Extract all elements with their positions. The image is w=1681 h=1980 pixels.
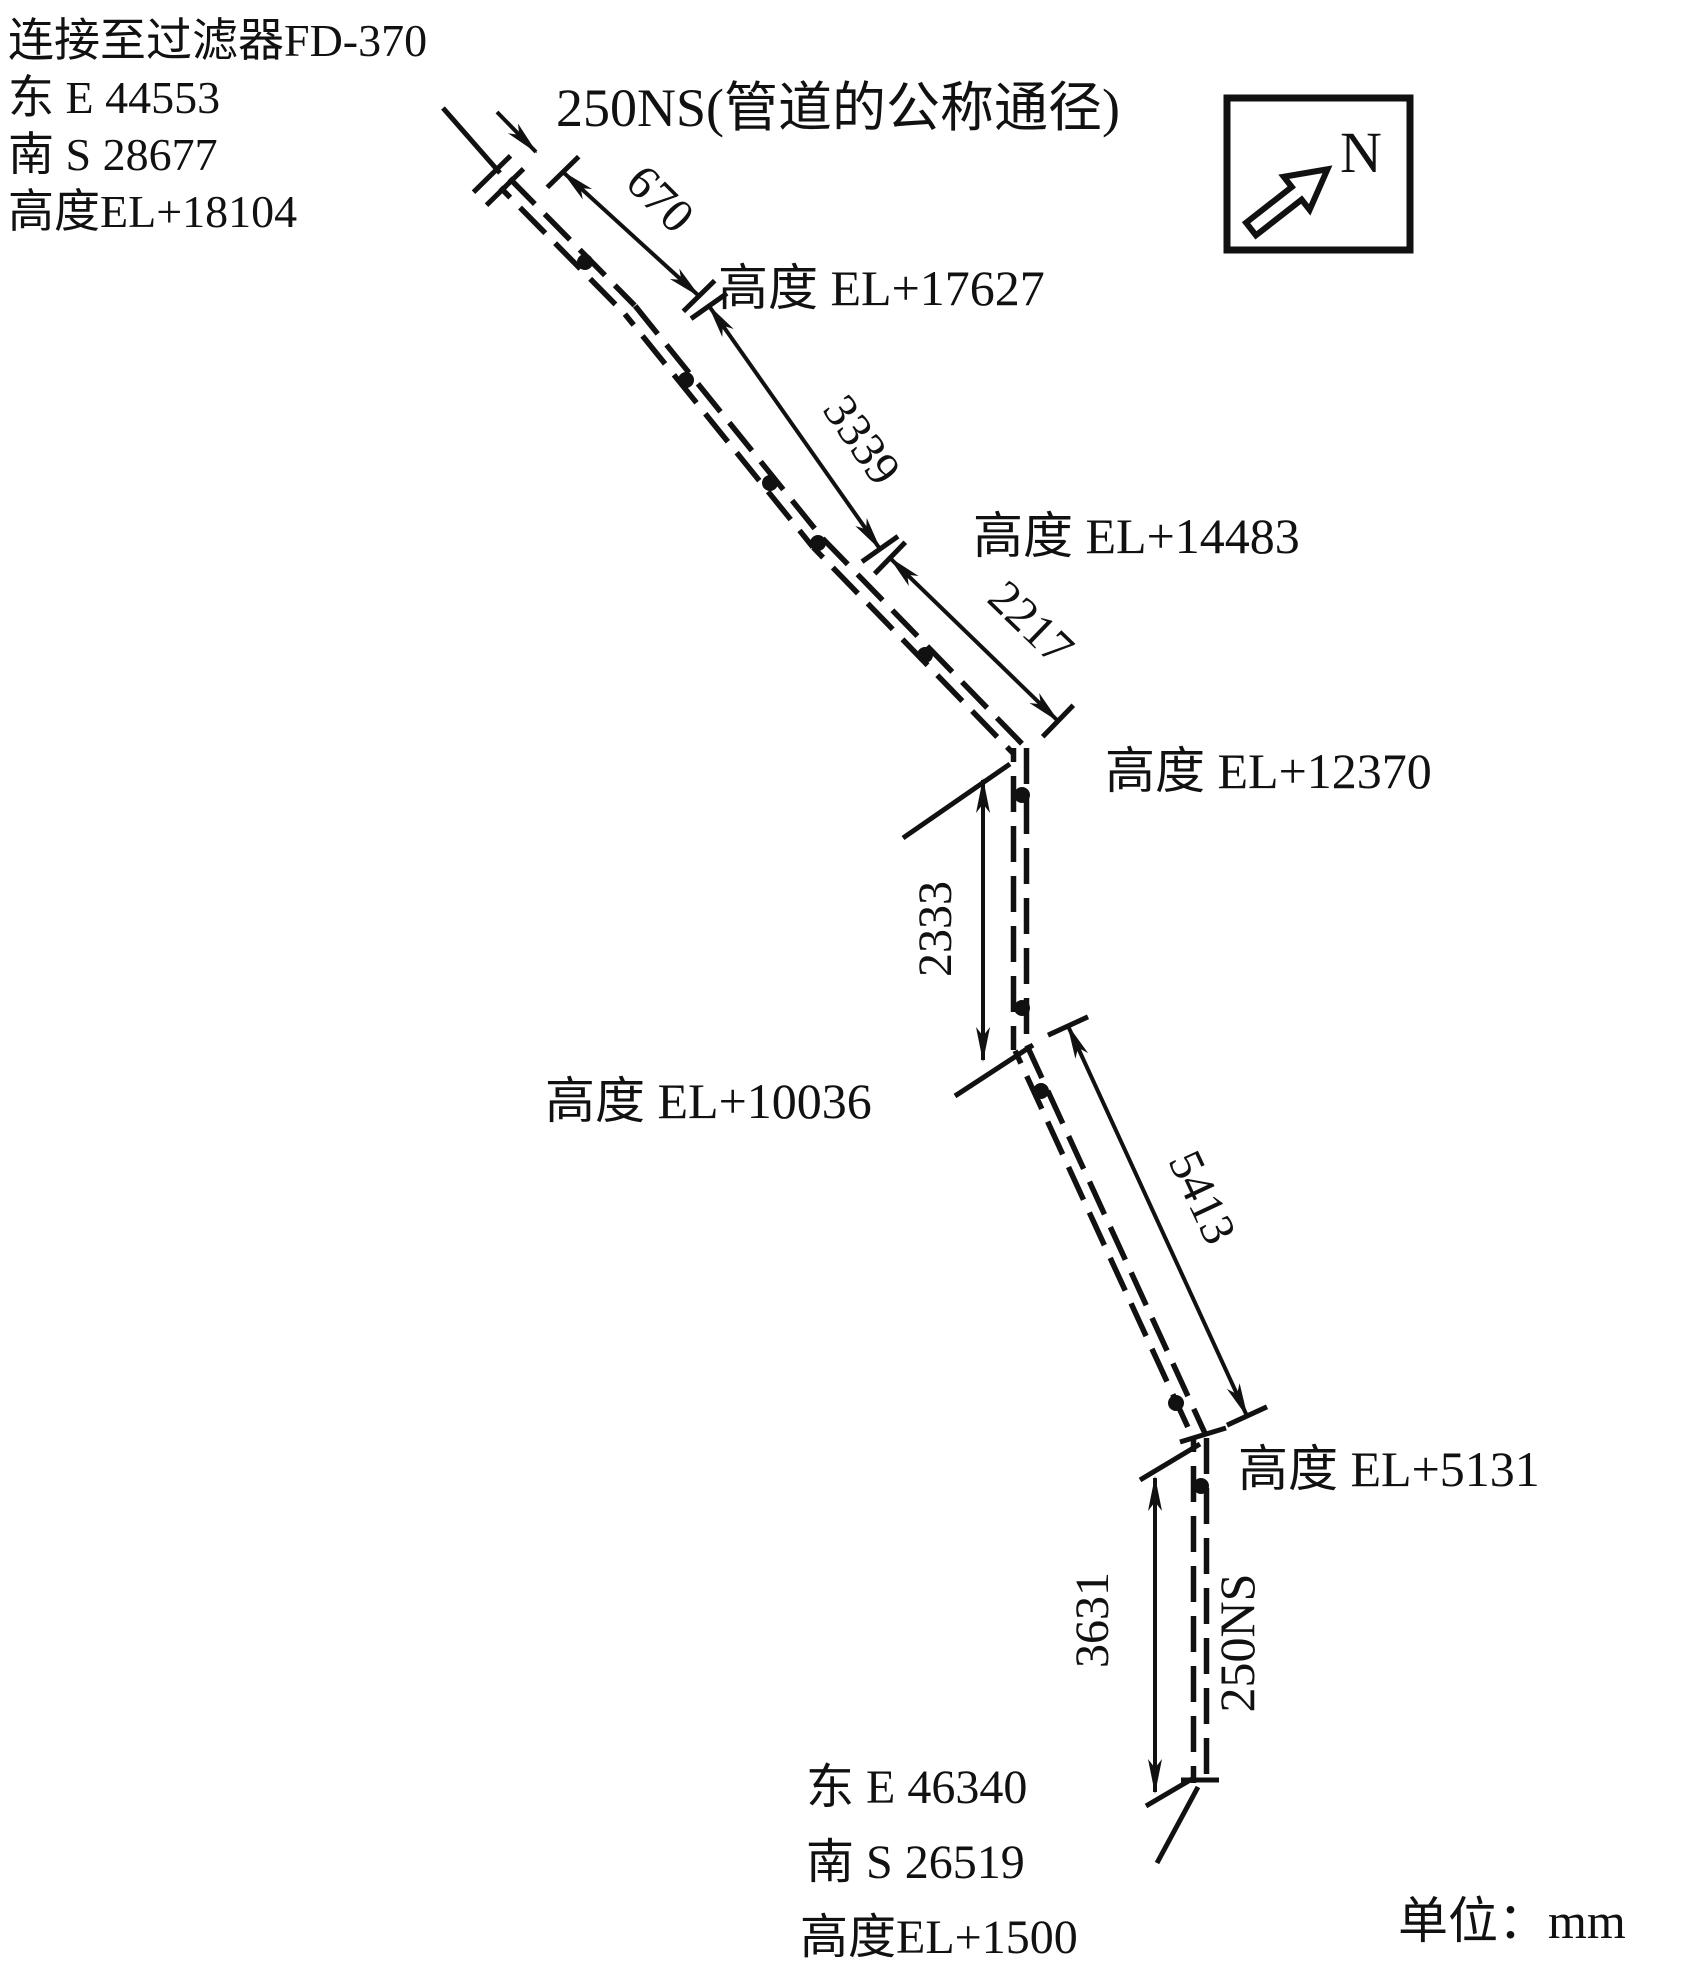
source-east: 东 E 44553 xyxy=(8,72,220,123)
north-arrow-icon xyxy=(1238,153,1340,246)
drawing-canvas: N 连接至过滤器FD-370 东 E 44553 南 S 28677 高度EL+… xyxy=(0,0,1681,1980)
destination-east: 东 E 46340 xyxy=(806,1761,1027,1814)
source-south: 南 S 28677 xyxy=(8,129,218,180)
dim-3631-label: 3631 xyxy=(1066,1572,1119,1668)
elevation-label-14483: 高度 EL+14483 xyxy=(973,508,1300,564)
elevation-label-17627: 高度 EL+17627 xyxy=(718,260,1045,316)
units-note: 单位：mm xyxy=(1398,1893,1626,1949)
piping-isometric-drawing: N 连接至过滤器FD-370 东 E 44553 南 S 28677 高度EL+… xyxy=(0,0,1681,1980)
elevation-label-5131: 高度 EL+5131 xyxy=(1238,1441,1540,1497)
north-arrow-box: N xyxy=(1227,98,1410,250)
pipe-size-tag: 250NS xyxy=(1209,1574,1265,1713)
dim-5413-label: 5413 xyxy=(1158,1143,1247,1252)
dim-3339-label: 3339 xyxy=(812,386,910,495)
elevation-labels: 高度 EL+17627 高度 EL+14483 高度 EL+12370 高度 E… xyxy=(545,260,1540,1497)
elevation-label-10036: 高度 EL+10036 xyxy=(545,1073,872,1129)
pipe-spec-leader xyxy=(497,112,536,152)
source-connection: 连接至过滤器FD-370 xyxy=(8,15,427,66)
elevation-label-12370: 高度 EL+12370 xyxy=(1105,743,1432,799)
destination-block: 东 E 46340 南 S 26519 高度EL+1500 xyxy=(800,1761,1078,1964)
start-flange xyxy=(443,108,524,205)
source-elevation: 高度EL+18104 xyxy=(8,186,297,237)
destination-south: 南 S 26519 xyxy=(806,1836,1025,1889)
source-block: 连接至过滤器FD-370 东 E 44553 南 S 28677 高度EL+18… xyxy=(8,15,427,237)
north-label: N xyxy=(1340,120,1382,185)
destination-elevation: 高度EL+1500 xyxy=(800,1911,1078,1964)
dimension-labels: 670 3339 2217 2333 5413 3631 250NS xyxy=(616,155,1265,1713)
dimension-lines xyxy=(547,157,1267,1806)
pipe-spec-label: 250NS(管道的公称通径) xyxy=(556,78,1120,138)
dim-2333-label: 2333 xyxy=(909,881,962,977)
